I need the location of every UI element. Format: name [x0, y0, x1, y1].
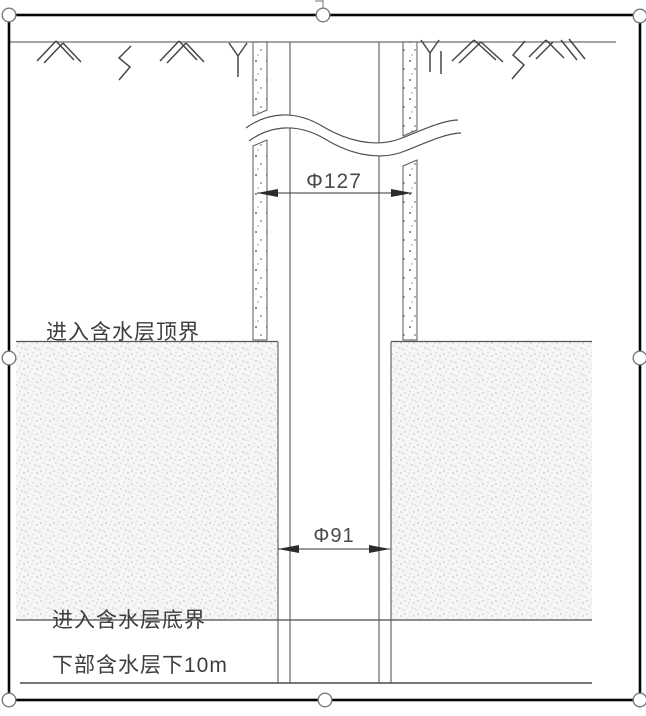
resize-handle-middle-left[interactable]	[2, 351, 16, 365]
hole-depth-label: 下部含水层下10m	[52, 654, 228, 677]
aquifer-layer-left	[16, 342, 278, 620]
resize-handle-middle-right[interactable]	[633, 351, 646, 365]
resize-handle-top-right[interactable]	[633, 9, 646, 23]
casing-wall-left-lower	[253, 140, 267, 340]
aquifer-top-label: 进入含水层顶界	[46, 321, 200, 344]
borehole-diameter-text: Φ91	[313, 525, 354, 547]
casing-wall-left-upper	[253, 42, 267, 116]
ground-hatch-icon	[229, 43, 247, 77]
resize-handle-top-left[interactable]	[2, 8, 16, 22]
ground-hatch-icon	[452, 40, 503, 63]
drawing-canvas: Φ127 Φ91 进入含水层顶界 进入含水层底界 下部含水层下10m	[0, 0, 646, 716]
resize-handle-bottom-center[interactable]	[318, 693, 332, 707]
ground-hatch-icons	[37, 39, 585, 80]
resize-handle-bottom-left[interactable]	[2, 693, 16, 707]
document-page: Φ127 Φ91 进入含水层顶界 进入含水层底界 下部含水层下10m	[0, 0, 646, 716]
ground-hatch-icon	[37, 41, 81, 63]
ground-hatch-icon	[512, 41, 525, 79]
ground-hatch-icon	[529, 40, 564, 59]
casing-wall-right-upper	[403, 42, 417, 136]
casing-wall-right-lower	[403, 160, 417, 340]
aquifer-bottom-label: 进入含水层底界	[52, 609, 206, 632]
ground-hatch-icon	[421, 40, 441, 74]
borehole-diameter-dimension: Φ91	[278, 525, 390, 553]
pipe-break-mask	[246, 115, 461, 156]
casing-diameter-dimension: Φ127	[257, 170, 412, 197]
resize-handle-bottom-right[interactable]	[633, 693, 646, 707]
ground-hatch-icon	[119, 46, 131, 80]
casing-diameter-text: Φ127	[306, 170, 362, 193]
resize-handle-top-center[interactable]	[316, 8, 330, 22]
aquifer-layer-right	[391, 342, 592, 620]
ground-hatch-icon	[160, 41, 204, 63]
arrow-left-icon	[278, 545, 299, 553]
